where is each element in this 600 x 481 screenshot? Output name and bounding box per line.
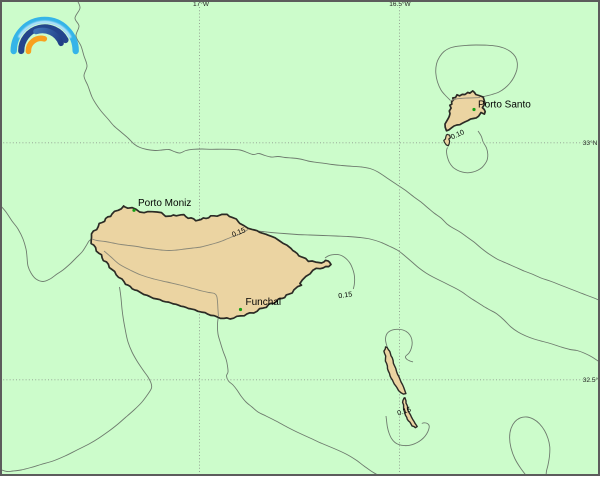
svg-text:Porto Moniz: Porto Moniz: [138, 198, 191, 209]
svg-text:32.5°N: 32.5°N: [583, 376, 600, 384]
svg-text:0.15: 0.15: [338, 289, 353, 300]
svg-text:Funchal: Funchal: [246, 297, 282, 308]
svg-text:Porto Santo: Porto Santo: [478, 100, 531, 111]
svg-text:33°N: 33°N: [583, 139, 598, 147]
